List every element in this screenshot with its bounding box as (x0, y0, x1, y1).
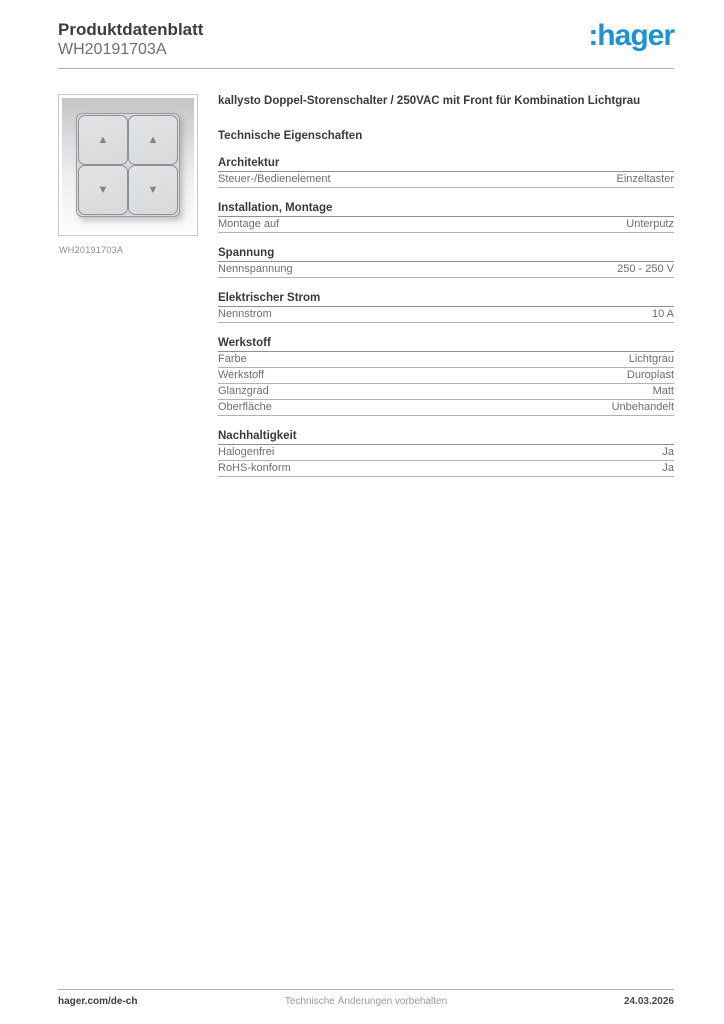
spec-label: Nennspannung (218, 263, 293, 276)
spec-row: RoHS-konformJa (218, 461, 674, 477)
spec-row: Montage aufUnterputz (218, 217, 674, 233)
header-text: Produktdatenblatt WH20191703A (58, 20, 203, 59)
spec-section-title: Nachhaltigkeit (218, 430, 674, 445)
footer-date: 24.03.2026 (624, 996, 674, 1008)
spec-row: GlanzgradMatt (218, 384, 674, 400)
footer: hager.com/de-ch Technische Änderungen vo… (58, 989, 674, 1008)
spec-value: Duroplast (627, 369, 674, 382)
spec-section-title: Elektrischer Strom (218, 292, 674, 307)
spec-label: Montage auf (218, 218, 279, 231)
spec-row: Steuer-/BedienelementEinzeltaster (218, 172, 674, 188)
product-code: WH20191703A (58, 40, 203, 59)
switch-key-down: ▼ (78, 165, 128, 215)
spec-section: NachhaltigkeitHalogenfreiJaRoHS-konformJ… (218, 430, 674, 477)
product-image-caption: WH20191703A (58, 245, 198, 255)
spec-label: RoHS-konform (218, 462, 291, 475)
product-photo-column: ▲▲▼▼ WH20191703A (58, 94, 198, 477)
spec-row: Nennstrom10 A (218, 307, 674, 323)
spec-value: Ja (662, 446, 674, 459)
main-content: ▲▲▼▼ WH20191703A kallysto Doppel-Storens… (0, 69, 724, 477)
hager-logo: :hager (588, 21, 674, 51)
spec-label: Oberfläche (218, 401, 272, 414)
spec-label: Steuer-/Bedienelement (218, 173, 331, 186)
spec-value: Einzeltaster (617, 173, 674, 186)
switch-key-down: ▼ (128, 165, 178, 215)
spec-sections: ArchitekturSteuer-/BedienelementEinzelta… (218, 157, 674, 477)
spec-value: Ja (662, 462, 674, 475)
spec-row: HalogenfreiJa (218, 445, 674, 461)
arrow-up-icon: ▲ (148, 135, 159, 146)
arrow-down-icon: ▼ (148, 185, 159, 196)
spec-row: OberflächeUnbehandelt (218, 400, 674, 416)
spec-row: Nennspannung250 - 250 V (218, 262, 674, 278)
arrow-down-icon: ▼ (98, 185, 109, 196)
product-description: kallysto Doppel-Storenschalter / 250VAC … (218, 94, 674, 108)
product-image: ▲▲▼▼ (58, 94, 198, 236)
switch-plate: ▲▲▼▼ (76, 113, 180, 217)
spec-value: Unbehandelt (612, 401, 674, 414)
spec-section-title: Architektur (218, 157, 674, 172)
spec-label: Nennstrom (218, 308, 272, 321)
spec-value: Lichtgrau (629, 353, 674, 366)
arrow-up-icon: ▲ (98, 135, 109, 146)
spec-value: Matt (653, 385, 674, 398)
spec-row: WerkstoffDuroplast (218, 368, 674, 384)
spec-section-title: Spannung (218, 247, 674, 262)
spec-label: Werkstoff (218, 369, 264, 382)
spec-value: 10 A (652, 308, 674, 321)
page-title: Produktdatenblatt (58, 20, 203, 40)
spec-section: ArchitekturSteuer-/BedienelementEinzelta… (218, 157, 674, 188)
switch-key-up: ▲ (128, 115, 178, 165)
spec-value: 250 - 250 V (617, 263, 674, 276)
spec-section: WerkstoffFarbeLichtgrauWerkstoffDuroplas… (218, 337, 674, 416)
spec-column: kallysto Doppel-Storenschalter / 250VAC … (218, 94, 674, 477)
spec-section: SpannungNennspannung250 - 250 V (218, 247, 674, 278)
spec-row: FarbeLichtgrau (218, 352, 674, 368)
spec-section: Installation, MontageMontage aufUnterput… (218, 202, 674, 233)
switch-key-up: ▲ (78, 115, 128, 165)
spec-label: Glanzgrad (218, 385, 269, 398)
spec-section-title: Werkstoff (218, 337, 674, 352)
header: Produktdatenblatt WH20191703A :hager (0, 0, 724, 59)
specs-heading: Technische Eigenschaften (218, 129, 674, 143)
spec-label: Farbe (218, 353, 247, 366)
footer-disclaimer: Technische Änderungen vorbehalten (58, 996, 674, 1008)
spec-value: Unterputz (626, 218, 674, 231)
footer-url: hager.com/de-ch (58, 996, 137, 1008)
spec-section: Elektrischer StromNennstrom10 A (218, 292, 674, 323)
spec-label: Halogenfrei (218, 446, 274, 459)
spec-section-title: Installation, Montage (218, 202, 674, 217)
